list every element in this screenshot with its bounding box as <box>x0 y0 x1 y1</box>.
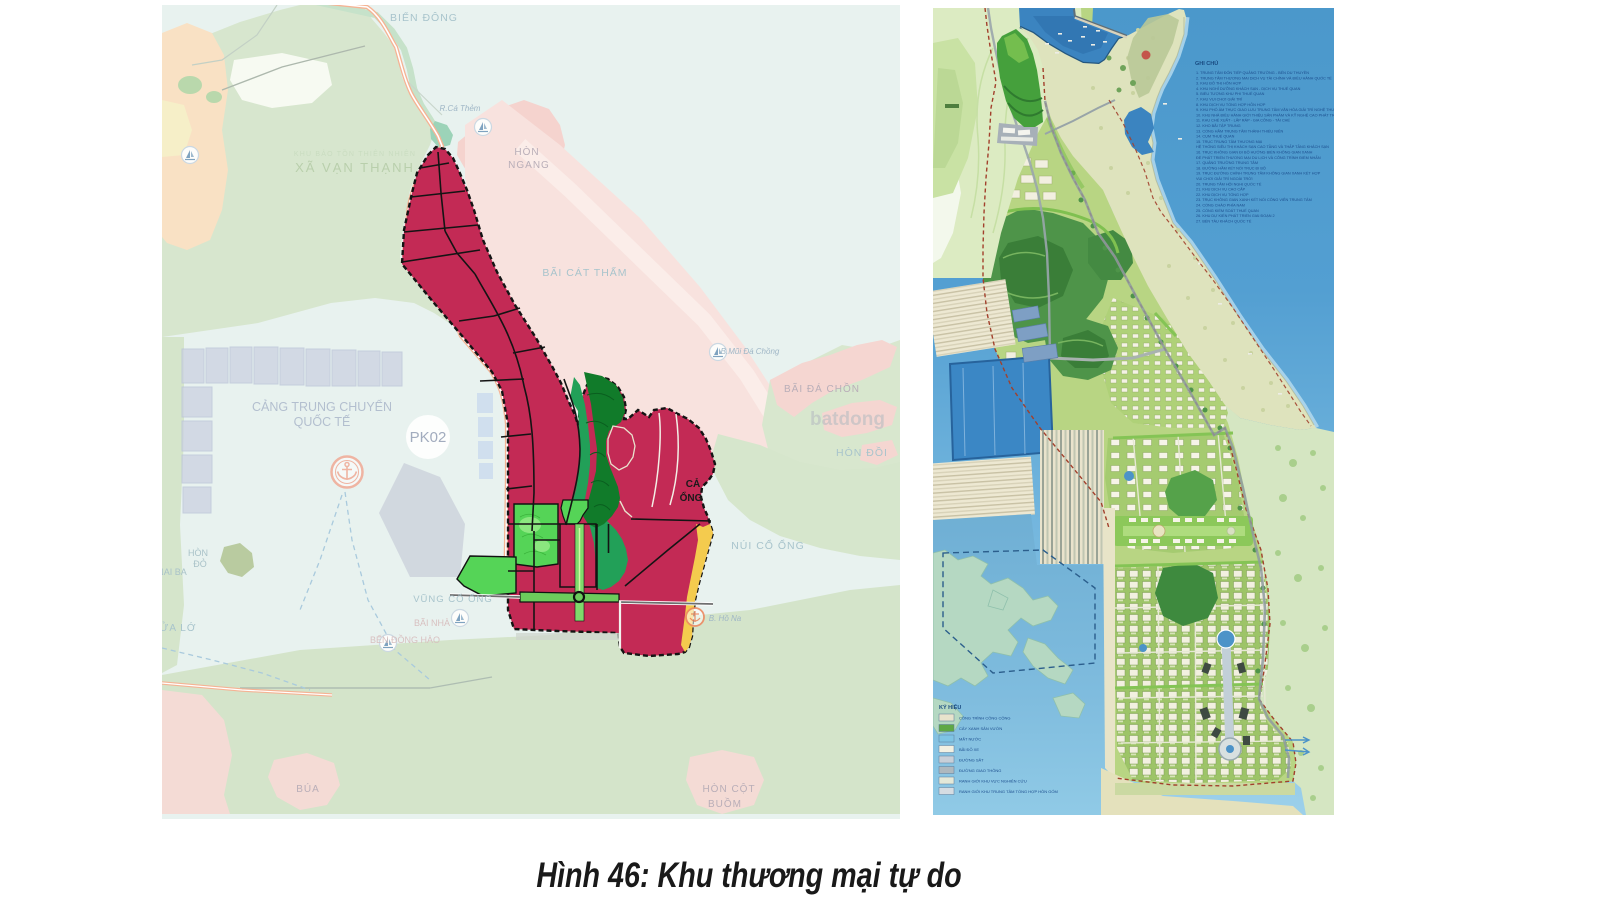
svg-text:HÒN: HÒN <box>514 145 539 158</box>
svg-text:BÚA: BÚA <box>296 782 320 795</box>
svg-text:19. TRỤC ĐƯỜNG CHÍNH TRUNG TÂM: 19. TRỤC ĐƯỜNG CHÍNH TRUNG TÂM KHÔNG GIA… <box>1196 171 1321 176</box>
svg-text:CẢNG TRUNG CHUYỂN: CẢNG TRUNG CHUYỂN <box>252 399 392 414</box>
svg-text:batdong: batdong <box>810 409 885 430</box>
svg-text:CÔNG TRÌNH CÔNG CỘNG: CÔNG TRÌNH CÔNG CỘNG <box>959 716 1010 721</box>
svg-text:R.Cá Thẻm: R.Cá Thẻm <box>440 104 481 113</box>
svg-text:27. BẾN TÀU KHÁCH QUỐC TẾ: 27. BẾN TÀU KHÁCH QUỐC TẾ <box>1196 218 1252 223</box>
svg-text:MẶT NƯỚC: MẶT NƯỚC <box>959 737 981 742</box>
svg-text:15. TRỤC TRUNG TÂM THƯƠNG MẠI: 15. TRỤC TRUNG TÂM THƯƠNG MẠI <box>1196 139 1262 144</box>
svg-text:ĐỎ: ĐỎ <box>193 558 207 569</box>
svg-text:HÒN ĐỒI: HÒN ĐỒI <box>836 446 888 459</box>
svg-text:1. TRUNG TÂM ĐÓN TIẾP QUẢNG TR: 1. TRUNG TÂM ĐÓN TIẾP QUẢNG TRƯỜNG - BẾN… <box>1196 70 1309 75</box>
svg-text:CỬA LỚ: CỬA LỚ <box>162 621 196 634</box>
svg-text:20. TRUNG TÂM HỘI NGHỊ QUỐC TẾ: 20. TRUNG TÂM HỘI NGHỊ QUỐC TẾ <box>1196 181 1262 186</box>
svg-text:GHI CHÚ: GHI CHÚ <box>1195 60 1218 67</box>
svg-text:NÚI CỔ ỔNG: NÚI CỔ ỔNG <box>731 539 805 552</box>
svg-text:BẾN ĐỒNG HÀO: BẾN ĐỒNG HÀO <box>370 634 440 645</box>
svg-text:4. KHU NGHỈ DƯỠNG KHÁCH SẠN -: 4. KHU NGHỈ DƯỠNG KHÁCH SẠN - DỊCH VỤ TH… <box>1196 86 1301 91</box>
svg-text:KÝ HIỆU: KÝ HIỆU <box>939 703 961 711</box>
svg-text:16. TRỤC KHÔNG GIAN ĐI BỘ HƯỚN: 16. TRỤC KHÔNG GIAN ĐI BỘ HƯỚNG BIỂN KHÔ… <box>1196 150 1313 155</box>
svg-text:B. Hồ Na: B. Hồ Na <box>709 614 742 623</box>
svg-text:QUỐC TẾ: QUỐC TẾ <box>294 414 351 429</box>
svg-text:5. BIỂU TƯỢNG KHU PHI THUẾ QUA: 5. BIỂU TƯỢNG KHU PHI THUẾ QUAN <box>1196 91 1265 96</box>
svg-text:BÃI NHÀ: BÃI NHÀ <box>414 618 450 628</box>
svg-text:8. KHU DỊCH VỤ TỔNG HỢP HỖN HỢ: 8. KHU DỊCH VỤ TỔNG HỢP HỖN HỢP <box>1196 102 1266 107</box>
svg-text:XÃ VẠN THẠNH: XÃ VẠN THẠNH <box>295 160 415 175</box>
svg-text:22. KHU DỊCH VỤ TỔNG HỢP: 22. KHU DỊCH VỤ TỔNG HỢP <box>1196 192 1249 197</box>
svg-text:14. CỤM THUẾ QUAN: 14. CỤM THUẾ QUAN <box>1196 134 1235 139</box>
svg-text:7. KHU VUI CHƠI GIẢI TRÍ: 7. KHU VUI CHƠI GIẢI TRÍ <box>1196 97 1243 102</box>
svg-text:26. KHU DỰ KIẾN PHÁT TRIỂN GIA: 26. KHU DỰ KIẾN PHÁT TRIỂN GIAI ĐOẠN 2 <box>1196 213 1275 218</box>
svg-text:HÒN: HÒN <box>188 548 208 558</box>
svg-text:NAI BA: NAI BA <box>162 567 187 577</box>
svg-text:CẢ: CẢ <box>686 477 700 490</box>
svg-text:3. KHU ĐÔ THỊ HỖN HỢP: 3. KHU ĐÔ THỊ HỖN HỢP <box>1196 81 1242 86</box>
svg-text:ĐƯỜNG GIAO THÔNG: ĐƯỜNG GIAO THÔNG <box>959 768 1001 773</box>
svg-text:9. KHU PHỐ ẨM THỰC GIAO LƯU TR: 9. KHU PHỐ ẨM THỰC GIAO LƯU TRUNG TÂM VĂ… <box>1196 107 1334 112</box>
svg-text:BÃI ĐỖ XE: BÃI ĐỖ XE <box>959 747 979 752</box>
svg-text:12. KHO BÃI TẬP TRUNG: 12. KHO BÃI TẬP TRUNG <box>1196 123 1241 128</box>
svg-text:ĐƯỜNG SẮT: ĐƯỜNG SẮT <box>959 758 984 763</box>
svg-text:BÃI CÁT THẤM: BÃI CÁT THẤM <box>542 266 627 279</box>
svg-text:RANH GIỚI KHU VỰC NGHIÊN CỨU: RANH GIỚI KHU VỰC NGHIÊN CỨU <box>959 779 1027 784</box>
svg-text:HỆ THỐNG SIÊU THỊ KHÁCH SẠN CA: HỆ THỐNG SIÊU THỊ KHÁCH SẠN CAO TẦNG VÀ … <box>1196 144 1329 149</box>
svg-text:ỔNG: ỔNG <box>680 491 703 504</box>
svg-text:VŨNG CỔ ỔNG: VŨNG CỔ ỔNG <box>413 593 493 605</box>
svg-text:21. KHU DỊCH VỤ CAO CẤP: 21. KHU DỊCH VỤ CAO CẤP <box>1196 188 1246 192</box>
svg-text:CÂY XANH SÂN VƯỜN: CÂY XANH SÂN VƯỜN <box>959 726 1002 731</box>
svg-text:17. QUẢNG TRƯỜNG TRUNG TÂM: 17. QUẢNG TRƯỜNG TRUNG TÂM <box>1196 160 1258 165</box>
svg-text:23. TRỤC KHÔNG GIAN XANH KẾT N: 23. TRỤC KHÔNG GIAN XANH KẾT NỐI CÔNG VI… <box>1196 197 1312 202</box>
svg-text:NGANG: NGANG <box>508 160 550 171</box>
svg-text:VUI CHƠI GIẢI TRÍ NGOÀI TRỜI: VUI CHƠI GIẢI TRÍ NGOÀI TRỜI <box>1196 176 1253 181</box>
svg-text:BIỂN ĐÔNG: BIỂN ĐÔNG <box>390 11 458 24</box>
svg-text:RANH GIỚI KHU TRUNG TÂM TỔNG H: RANH GIỚI KHU TRUNG TÂM TỔNG HỢP HÒN GỐM <box>959 789 1058 794</box>
svg-text:18. ĐƯỜNG HẦM KẾT NỐI TRỤC ĐI: 18. ĐƯỜNG HẦM KẾT NỐI TRỤC ĐI BỘ <box>1196 165 1266 170</box>
svg-text:2. TRUNG TÂM THƯƠNG MẠI DỊCH V: 2. TRUNG TÂM THƯƠNG MẠI DỊCH VỤ TÀI CHÍN… <box>1196 75 1332 80</box>
svg-text:11. KHU CHẾ XUẤT - LẮP RÁP - G: 11. KHU CHẾ XUẤT - LẮP RÁP - GIA CÔNG - … <box>1196 118 1290 123</box>
svg-text:24. CỔNG CHÀO PHÍA NAM: 24. CỔNG CHÀO PHÍA NAM <box>1196 203 1245 208</box>
svg-text:13. CỔNG HẦM TRUNG TÂM THÀNH T: 13. CỔNG HẦM TRUNG TÂM THÀNH THIẾU NIÊN <box>1196 128 1284 133</box>
svg-text:HÒN CỘT: HÒN CỘT <box>702 782 755 795</box>
svg-text:B.Mũi Đá Chồng: B.Mũi Đá Chồng <box>721 347 780 356</box>
svg-text:BÃI ĐÁ CHỒN: BÃI ĐÁ CHỒN <box>784 382 860 395</box>
svg-text:ĐỂ PHÁT TRIỂN THƯƠNG MẠI DU LỊ: ĐỂ PHÁT TRIỂN THƯƠNG MẠI DU LỊCH VÀ CÔNG… <box>1196 155 1321 160</box>
svg-text:25. CỔNG KIỂM SOÁT THUẾ QUAN: 25. CỔNG KIỂM SOÁT THUẾ QUAN <box>1196 208 1259 213</box>
svg-text:BUỒM: BUỒM <box>708 797 742 810</box>
svg-text:PK02: PK02 <box>410 429 447 446</box>
svg-text:10. KHU NHÀ ĐIỀU HÀNH GIỚI THI: 10. KHU NHÀ ĐIỀU HÀNH GIỚI THIỆU SẢN PHẨ… <box>1196 112 1334 117</box>
